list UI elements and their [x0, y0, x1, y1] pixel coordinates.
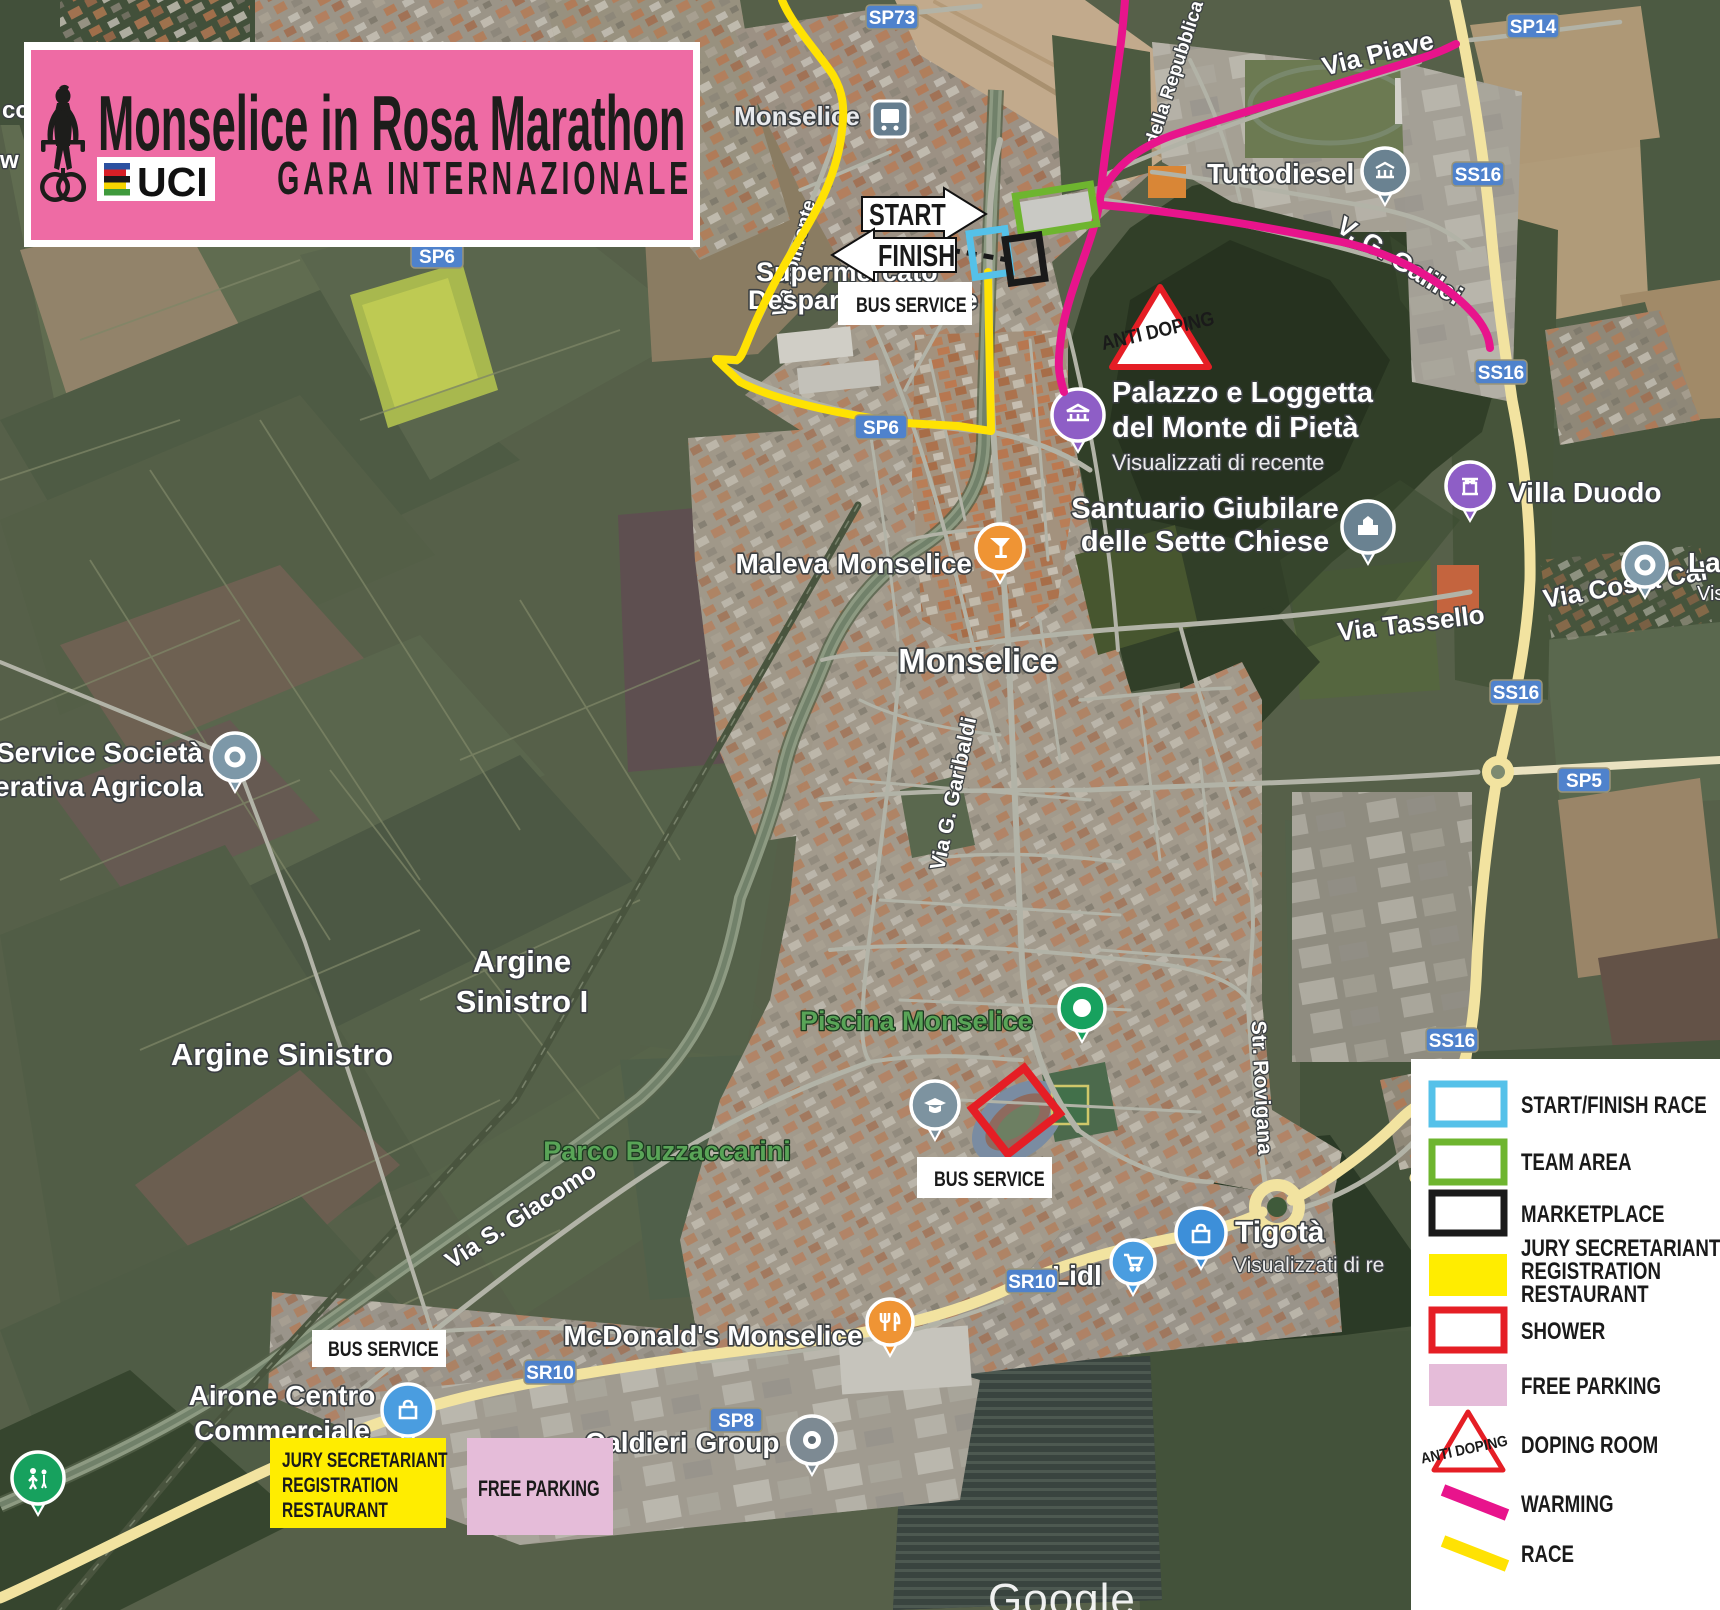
svg-text:TEAM AREA: TEAM AREA [1521, 1149, 1632, 1176]
svg-text:Argine Sinistro: Argine Sinistro [171, 1037, 393, 1072]
svg-text:SP14: SP14 [1510, 17, 1557, 38]
svg-text:START/FINISH RACE: START/FINISH RACE [1521, 1092, 1707, 1119]
svg-text:JURY SECRETARIANT: JURY SECRETARIANT [282, 1448, 448, 1472]
svg-text:erativa Agricola: erativa Agricola [0, 771, 203, 802]
svg-text:Tigotà: Tigotà [1235, 1216, 1325, 1249]
svg-text:Palazzo e Loggetta: Palazzo e Loggetta [1112, 377, 1374, 409]
svg-text:SP73: SP73 [869, 8, 915, 29]
svg-text:SHOWER: SHOWER [1521, 1318, 1606, 1345]
svg-text:FINISH: FINISH [878, 238, 955, 273]
svg-text:Piscina Monselice: Piscina Monselice [800, 1006, 1033, 1036]
svg-text:BUS SERVICE: BUS SERVICE [856, 293, 967, 316]
svg-text:Service Società: Service Società [0, 737, 203, 768]
svg-text:WARMING: WARMING [1521, 1491, 1614, 1518]
svg-text:SR10: SR10 [1008, 1272, 1056, 1293]
svg-text:Villa Duodo: Villa Duodo [1508, 477, 1662, 508]
svg-text:SP6: SP6 [863, 418, 899, 439]
svg-text:SS16: SS16 [1429, 1031, 1475, 1052]
svg-text:START: START [869, 197, 946, 232]
svg-text:SS16: SS16 [1455, 165, 1501, 186]
svg-text:RESTAURANT: RESTAURANT [1521, 1281, 1649, 1308]
svg-text:Argine: Argine [473, 944, 571, 979]
svg-text:Visualizzati di re: Visualizzati di re [1233, 1254, 1384, 1277]
svg-text:La R: La R [1688, 547, 1720, 578]
svg-text:Google: Google [988, 1575, 1136, 1610]
svg-text:BUS SERVICE: BUS SERVICE [934, 1167, 1045, 1190]
svg-text:McDonald's Monselice: McDonald's Monselice [563, 1320, 862, 1351]
svg-text:Sinistro I: Sinistro I [456, 984, 589, 1019]
svg-text:FREE PARKING: FREE PARKING [478, 1477, 600, 1502]
svg-text:SS16: SS16 [1493, 683, 1539, 704]
svg-text:FREE PARKING: FREE PARKING [1521, 1373, 1661, 1400]
svg-text:Monselice: Monselice [898, 642, 1058, 679]
svg-text:Maleva Monselice: Maleva Monselice [735, 548, 972, 579]
svg-text:GARA INTERNAZIONALE: GARA INTERNAZIONALE [277, 153, 688, 205]
svg-text:SP8: SP8 [718, 1411, 754, 1432]
svg-text:w: w [0, 147, 19, 174]
svg-text:Santuario Giubilare: Santuario Giubilare [1071, 493, 1339, 525]
svg-text:Tuttodiesel: Tuttodiesel [1207, 158, 1354, 189]
svg-text:Visu: Visu [1697, 583, 1720, 605]
svg-text:DOPING ROOM: DOPING ROOM [1521, 1432, 1658, 1459]
svg-text:SS16: SS16 [1478, 363, 1524, 384]
svg-text:RESTAURANT: RESTAURANT [282, 1498, 388, 1522]
svg-text:del Monte di Pietà: del Monte di Pietà [1112, 412, 1359, 444]
svg-text:UCI: UCI [137, 159, 208, 205]
svg-text:REGISTRATION: REGISTRATION [282, 1473, 398, 1497]
svg-text:delle Sette Chiese: delle Sette Chiese [1081, 526, 1329, 558]
svg-text:RACE: RACE [1521, 1541, 1574, 1568]
svg-text:Parco Buzzaccarini: Parco Buzzaccarini [543, 1136, 791, 1166]
svg-text:Airone Centro: Airone Centro [189, 1380, 376, 1411]
svg-text:SR10: SR10 [526, 1363, 574, 1384]
svg-text:SP6: SP6 [419, 247, 455, 268]
svg-text:MARKETPLACE: MARKETPLACE [1521, 1201, 1664, 1228]
svg-text:BUS SERVICE: BUS SERVICE [328, 1337, 439, 1360]
svg-text:Lidl: Lidl [1052, 1260, 1102, 1291]
svg-text:SP5: SP5 [1566, 771, 1602, 792]
svg-text:Visualizzati di recente: Visualizzati di recente [1112, 450, 1324, 475]
